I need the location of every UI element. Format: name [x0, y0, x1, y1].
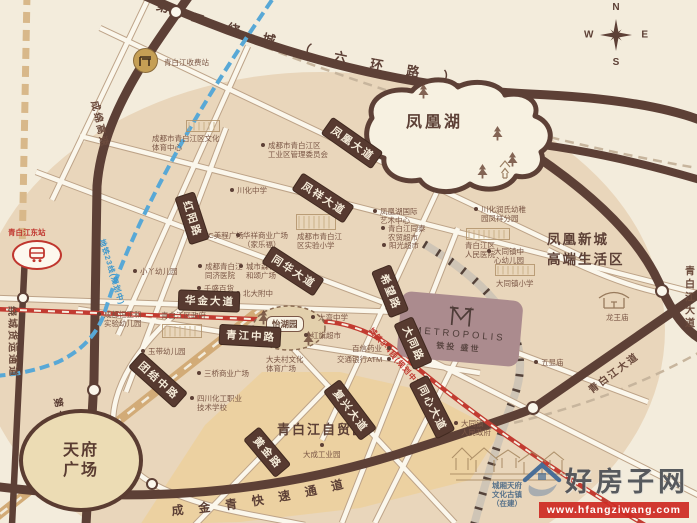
poi-label: 大同镇中心幼儿园 — [494, 247, 524, 265]
compass-rose: N S W E — [584, 2, 648, 68]
poi-line: 大弯中学 — [318, 313, 348, 322]
poi-label: 青白江东站 — [8, 228, 46, 237]
poi-dot — [454, 421, 458, 425]
poi-line: 同济医院 — [205, 271, 243, 280]
poi-label: 成都青白江同济医院 — [205, 262, 243, 280]
poi-label: 青白江收费站 — [164, 58, 209, 67]
poi-dot — [381, 226, 385, 230]
poi-dot — [373, 209, 377, 213]
poi-line: 五显庙 — [541, 358, 564, 367]
poi-line: 工业区管理委员会 — [268, 150, 328, 159]
poi-line: 百信药业 — [352, 344, 382, 353]
poi-line: 成都市青白江 — [297, 232, 342, 241]
lake-label: 凤凰湖 — [406, 108, 463, 132]
pine-sketch-icon — [492, 126, 503, 146]
newcity-line2: 高端生活区 — [547, 250, 625, 270]
road-badge: 青江中路 — [218, 324, 281, 348]
poi-dot — [261, 143, 265, 147]
poi-line: 华祥商业广场 — [243, 231, 288, 240]
compass-star-icon — [598, 17, 634, 53]
building-sketch-icon — [162, 322, 202, 343]
poi-line: 大同镇小学 — [496, 279, 534, 288]
project-name-cn: 铁投 盛世 — [436, 340, 481, 355]
road-name-text: 绕城货运通道 — [6, 306, 22, 378]
poi-dot — [320, 443, 324, 447]
poi-line: 大夫村文化 — [266, 355, 304, 364]
poi-line: 成都恒正和 — [104, 310, 142, 319]
poi-line: 城厢天府 — [492, 481, 522, 490]
poi-line: 体育广场 — [266, 364, 304, 373]
metropolis-logo-icon — [447, 304, 475, 328]
pine-sketch-icon — [418, 84, 429, 104]
poi-label: 大同镇小学 — [496, 279, 534, 288]
poi-dot — [133, 269, 137, 273]
compass-e: E — [641, 30, 648, 41]
poi-label: 红旗超市 — [311, 331, 341, 340]
poi-dot — [197, 371, 201, 375]
train-station-icon — [12, 240, 62, 270]
poi-line: 三桥商业广场 — [204, 369, 249, 378]
poi-dot — [239, 264, 243, 268]
poi-label: 川化中学 — [237, 186, 267, 195]
poi-line: 红旗超市 — [311, 331, 341, 340]
compass-w: W — [584, 30, 593, 41]
toll-station-icon — [133, 48, 158, 73]
poi-line: 四川化工职业 — [197, 394, 242, 403]
poi-line: 龙王庙 — [606, 313, 629, 322]
poi-line: 成都青白江 — [205, 262, 243, 271]
poi-label: 四川化工职业技术学校 — [197, 394, 242, 412]
poi-line: 青白江东站 — [8, 228, 46, 237]
poi-label: 凤凰湖国际艺术中心 — [380, 207, 418, 225]
poi-line: 成都市青白江区 — [268, 141, 328, 150]
poi-label: 成都市青白江区文化体育中心 — [152, 134, 220, 152]
poi-label: 阳光超市 — [389, 241, 419, 250]
poi-line: 大同镇中 — [494, 247, 524, 256]
poi-line: 青白江收费站 — [164, 58, 209, 67]
poi-label: 大夫村文化体育广场 — [266, 355, 304, 373]
tianfu-line1: 天府 — [63, 441, 99, 461]
poi-label: 北大附中 — [243, 289, 273, 298]
watermark-house-icon — [519, 458, 565, 500]
road-name-text: 青白江大道 — [681, 266, 696, 331]
compass-n: N — [612, 2, 619, 13]
poi-dot — [97, 312, 101, 316]
poi-line: 川化中学 — [237, 186, 267, 195]
poi-label: 百信药业 — [352, 344, 382, 353]
phoenix-lake — [367, 80, 551, 192]
poi-label: 五显庙 — [541, 358, 564, 367]
poi-line: 实验幼儿园 — [104, 319, 142, 328]
poi-line: 文化古镇 — [492, 490, 522, 499]
watermark-brand: 好房子网 — [565, 460, 689, 499]
location-map: 第二绕城（六环路） 第一绕城（四环路） 成金青快速通道 METROPOLIS 铁… — [0, 0, 697, 523]
poi-line: 技术学校 — [197, 403, 242, 412]
poi-dot — [382, 243, 386, 247]
poi-dot — [534, 360, 538, 364]
poi-line: 阳光超市 — [389, 241, 419, 250]
poi-line: （家乐福） — [243, 240, 288, 249]
pagoda-sketch-icon — [498, 160, 512, 185]
compass-s: S — [613, 57, 620, 68]
poi-label: 大弯中学 — [318, 313, 348, 322]
poi-label: 川化润氏幼稚园凤祥分园 — [481, 205, 526, 223]
poi-label: 大成工业园 — [303, 450, 341, 459]
poi-line: 心幼儿园 — [494, 256, 524, 265]
poi-label: 小丫幼儿园 — [140, 267, 178, 276]
poi-label: 三桥商业广场 — [204, 369, 249, 378]
temple-sketch-icon — [597, 288, 631, 315]
poi-line: 成都市青白江区文化 — [152, 134, 220, 143]
poi-line: 小丫幼儿园 — [140, 267, 178, 276]
poi-line: 人民政府 — [461, 428, 491, 437]
pine-sketch-icon — [477, 164, 488, 184]
poi-line: 青白江同泰 — [388, 224, 426, 233]
poi-line: 大成工业园 — [303, 450, 341, 459]
poi-dot — [230, 188, 234, 192]
tianfu-line2: 广场 — [63, 461, 99, 481]
poi-label: 青白江同泰农贸超市 — [388, 224, 426, 242]
poi-dot — [190, 396, 194, 400]
poi-dot — [236, 233, 240, 237]
poi-line: 体育中心 — [152, 143, 220, 152]
newcity-line1: 凤凰新城 — [547, 230, 625, 250]
poi-dot — [487, 249, 491, 253]
newcity-label: 凤凰新城 高端生活区 — [547, 230, 625, 270]
poi-line: 大同镇 — [461, 419, 491, 428]
poi-label: 成都市青白江区实验小学 — [297, 232, 342, 250]
site-watermark: 好房子网 www.hfangziwang.com — [519, 458, 689, 518]
poi-label: 交通银行ATM — [337, 355, 382, 364]
poi-line: 北大附中 — [243, 289, 273, 298]
poi-line: 交通银行ATM — [337, 355, 382, 364]
poi-line: 区实验小学 — [297, 241, 342, 250]
poi-label: 玉带幼儿园 — [148, 347, 186, 356]
tianfu-square-marker: 天府 广场 — [19, 409, 143, 512]
poi-line: 凤凰湖国际 — [380, 207, 418, 216]
poi-label: 大同镇人民政府 — [461, 419, 491, 437]
poi-line: 园凤祥分园 — [481, 214, 526, 223]
poi-dot — [311, 315, 315, 319]
poi-dot — [474, 207, 478, 211]
poi-dot — [198, 264, 202, 268]
poi-line: 川化润氏幼稚 — [481, 205, 526, 214]
road-badge: 华金大道 — [178, 289, 241, 312]
poi-label: 成都恒正和实验幼儿园 — [104, 310, 142, 328]
poi-label: 青白江区政府 — [161, 311, 206, 320]
poi-label: 龙王庙 — [606, 313, 629, 322]
poi-line: 青白江区 — [465, 241, 495, 250]
poi-dot — [387, 346, 391, 350]
poi-label: 华祥商业广场（家乐福） — [243, 231, 288, 249]
poi-line: （在建） — [492, 499, 522, 508]
poi-dot — [304, 333, 308, 337]
watermark-url: www.hfangziwang.com — [539, 502, 689, 518]
poi-label: 城厢天府文化古镇（在建） — [492, 481, 522, 508]
poi-label: 成都市青白江区工业区管理委员会 — [268, 141, 328, 159]
poi-line: 和颂广场 — [246, 271, 276, 280]
poi-line: 玉带幼儿园 — [148, 347, 186, 356]
poi-line: 青白江区政府 — [161, 311, 206, 320]
